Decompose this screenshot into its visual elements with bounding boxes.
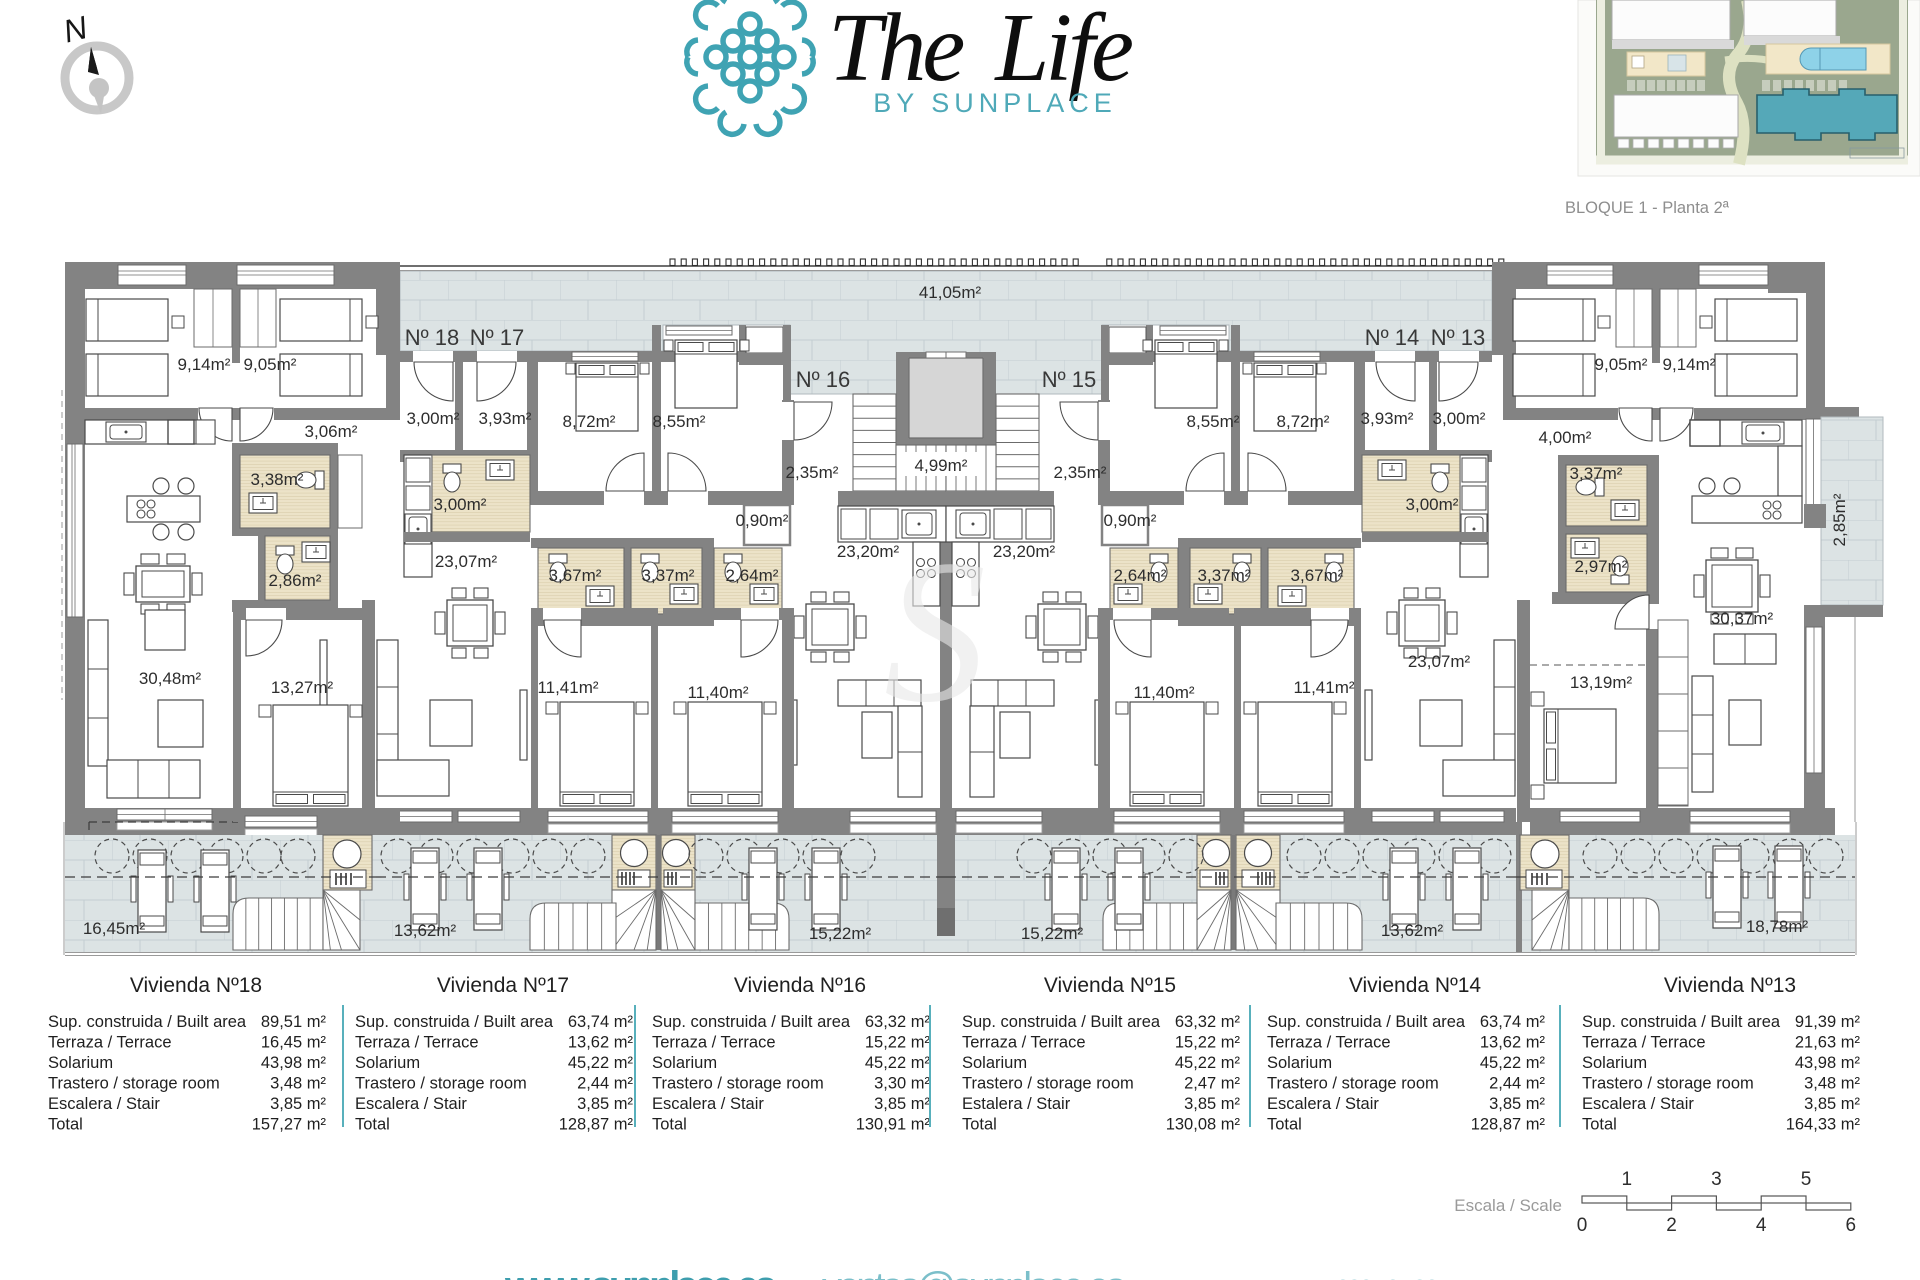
svg-text:3,37m²: 3,37m² bbox=[1198, 566, 1251, 585]
svg-text:2,44 m²: 2,44 m² bbox=[577, 1075, 633, 1093]
svg-text:ventas@sunplace.es: ventas@sunplace.es bbox=[822, 1265, 1126, 1280]
svg-text:18,78m²: 18,78m² bbox=[1746, 917, 1809, 936]
svg-text:Trastero / storage room: Trastero / storage room bbox=[1267, 1075, 1439, 1093]
svg-text:Solarium: Solarium bbox=[355, 1054, 420, 1072]
svg-text:Nº 16: Nº 16 bbox=[796, 367, 851, 392]
svg-text:Escalera / Stair: Escalera / Stair bbox=[1582, 1095, 1694, 1113]
svg-text:3,85 m²: 3,85 m² bbox=[577, 1095, 633, 1113]
svg-text:3,48 m²: 3,48 m² bbox=[270, 1075, 326, 1093]
svg-text:Total: Total bbox=[1582, 1116, 1617, 1134]
svg-text:Total: Total bbox=[48, 1116, 83, 1134]
svg-text:13,27m²: 13,27m² bbox=[271, 678, 334, 697]
svg-text:3,67m²: 3,67m² bbox=[549, 566, 602, 585]
svg-text:13,62m²: 13,62m² bbox=[1381, 921, 1444, 940]
svg-text:45,22 m²: 45,22 m² bbox=[1175, 1054, 1241, 1072]
svg-text:91,39 m²: 91,39 m² bbox=[1795, 1013, 1861, 1031]
svg-text:23,07m²: 23,07m² bbox=[435, 552, 498, 571]
svg-text:Total: Total bbox=[962, 1116, 997, 1134]
svg-text:Vivienda Nº13: Vivienda Nº13 bbox=[1664, 974, 1796, 997]
svg-text:4,00m²: 4,00m² bbox=[1539, 428, 1592, 447]
svg-text:3,37m²: 3,37m² bbox=[1570, 464, 1623, 483]
svg-text:4,99m²: 4,99m² bbox=[915, 456, 968, 475]
svg-text:3,00m²: 3,00m² bbox=[434, 495, 487, 514]
svg-text:Vivienda Nº16: Vivienda Nº16 bbox=[734, 974, 866, 997]
svg-text:Trastero / storage room: Trastero / storage room bbox=[355, 1075, 527, 1093]
svg-text:5: 5 bbox=[1801, 1169, 1812, 1190]
svg-text:41,05m²: 41,05m² bbox=[919, 283, 982, 302]
svg-text:6: 6 bbox=[1846, 1215, 1857, 1236]
svg-text:2,64m²: 2,64m² bbox=[726, 566, 779, 585]
svg-text:16,45 m²: 16,45 m² bbox=[261, 1034, 327, 1052]
svg-text:45,22 m²: 45,22 m² bbox=[865, 1054, 931, 1072]
svg-text:3,85 m²: 3,85 m² bbox=[1184, 1095, 1240, 1113]
svg-text:Vivienda Nº15: Vivienda Nº15 bbox=[1044, 974, 1176, 997]
svg-text:0,90m²: 0,90m² bbox=[1104, 511, 1157, 530]
svg-text:Escalera / Stair: Escalera / Stair bbox=[48, 1095, 160, 1113]
svg-text:16,45m²: 16,45m² bbox=[83, 919, 146, 938]
svg-text:Escalera / Stair: Escalera / Stair bbox=[652, 1095, 764, 1113]
svg-text:0: 0 bbox=[1577, 1215, 1588, 1236]
svg-text:15,22m²: 15,22m² bbox=[1021, 924, 1084, 943]
svg-text:Escala / Scale: Escala / Scale bbox=[1454, 1196, 1562, 1215]
svg-text:8,55m²: 8,55m² bbox=[1187, 412, 1240, 431]
svg-text:63,32 m²: 63,32 m² bbox=[1175, 1013, 1241, 1031]
svg-text:Sup. construida / Built area: Sup. construida / Built area bbox=[355, 1013, 554, 1031]
svg-text:164,33 m²: 164,33 m² bbox=[1786, 1116, 1861, 1134]
svg-text:682 435 861: 682 435 861 bbox=[1334, 1273, 1452, 1280]
svg-text:Total: Total bbox=[652, 1116, 687, 1134]
svg-text:Vivienda Nº18: Vivienda Nº18 bbox=[130, 974, 262, 997]
svg-text:Solarium: Solarium bbox=[1582, 1054, 1647, 1072]
svg-text:3,00m²: 3,00m² bbox=[1406, 495, 1459, 514]
svg-text:www.sunplace.es: www.sunplace.es bbox=[504, 1264, 777, 1280]
svg-text:2: 2 bbox=[1666, 1215, 1677, 1236]
svg-text:Sup. construida / Built area: Sup. construida / Built area bbox=[1582, 1013, 1781, 1031]
svg-text:Nº 17: Nº 17 bbox=[470, 325, 525, 350]
svg-text:89,51 m²: 89,51 m² bbox=[261, 1013, 327, 1031]
svg-text:3,93m²: 3,93m² bbox=[479, 409, 532, 428]
svg-text:Trastero / storage room: Trastero / storage room bbox=[652, 1075, 824, 1093]
svg-text:3,48 m²: 3,48 m² bbox=[1804, 1075, 1860, 1093]
svg-text:Sup. construida / Built area: Sup. construida / Built area bbox=[1267, 1013, 1466, 1031]
svg-text:Sup. construida / Built area: Sup. construida / Built area bbox=[962, 1013, 1161, 1031]
svg-text:8,55m²: 8,55m² bbox=[653, 412, 706, 431]
svg-text:Terraza / Terrace: Terraza / Terrace bbox=[1582, 1034, 1706, 1052]
svg-text:0,90m²: 0,90m² bbox=[736, 511, 789, 530]
svg-text:Terraza / Terrace: Terraza / Terrace bbox=[1267, 1034, 1391, 1052]
svg-text:Vivienda Nº14: Vivienda Nº14 bbox=[1349, 974, 1482, 997]
svg-text:Nº 15: Nº 15 bbox=[1042, 367, 1097, 392]
svg-text:11,41m²: 11,41m² bbox=[537, 678, 598, 697]
svg-text:3,67m²: 3,67m² bbox=[1291, 566, 1344, 585]
svg-text:3,85 m²: 3,85 m² bbox=[270, 1095, 326, 1113]
svg-text:1: 1 bbox=[1622, 1169, 1633, 1190]
svg-text:9,05m²: 9,05m² bbox=[244, 355, 297, 374]
svg-text:11,40m²: 11,40m² bbox=[1133, 683, 1194, 702]
svg-text:Nº 18: Nº 18 bbox=[405, 325, 460, 350]
svg-text:Solarium: Solarium bbox=[1267, 1054, 1332, 1072]
svg-text:23,20m²: 23,20m² bbox=[993, 542, 1056, 561]
svg-text:43,98 m²: 43,98 m² bbox=[1795, 1054, 1861, 1072]
svg-text:3,38m²: 3,38m² bbox=[251, 470, 304, 489]
svg-text:13,62 m²: 13,62 m² bbox=[568, 1034, 634, 1052]
svg-text:45,22 m²: 45,22 m² bbox=[1480, 1054, 1546, 1072]
svg-text:3,00m²: 3,00m² bbox=[407, 409, 460, 428]
svg-text:Trastero / storage room: Trastero / storage room bbox=[962, 1075, 1134, 1093]
svg-text:Total: Total bbox=[355, 1116, 390, 1134]
svg-text:3,00m²: 3,00m² bbox=[1433, 409, 1486, 428]
svg-text:13,62 m²: 13,62 m² bbox=[1480, 1034, 1546, 1052]
svg-text:Estalera / Stair: Estalera / Stair bbox=[962, 1095, 1071, 1113]
svg-text:Trastero / storage room: Trastero / storage room bbox=[1582, 1075, 1754, 1093]
svg-text:21,63 m²: 21,63 m² bbox=[1795, 1034, 1861, 1052]
svg-text:23,20m²: 23,20m² bbox=[837, 542, 900, 561]
svg-text:Terraza / Terrace: Terraza / Terrace bbox=[652, 1034, 776, 1052]
svg-text:15,22 m²: 15,22 m² bbox=[865, 1034, 931, 1052]
svg-text:8,72m²: 8,72m² bbox=[563, 412, 616, 431]
svg-text:Solarium: Solarium bbox=[48, 1054, 113, 1072]
svg-text:11,40m²: 11,40m² bbox=[687, 683, 748, 702]
svg-text:8,72m²: 8,72m² bbox=[1277, 412, 1330, 431]
svg-text:2,86m²: 2,86m² bbox=[269, 571, 322, 590]
svg-text:3,93m²: 3,93m² bbox=[1361, 409, 1414, 428]
svg-text:157,27 m²: 157,27 m² bbox=[252, 1116, 327, 1134]
svg-text:BY SUNPLACE: BY SUNPLACE bbox=[873, 88, 1117, 118]
svg-text:13,19m²: 13,19m² bbox=[1570, 673, 1633, 692]
svg-text:30,48m²: 30,48m² bbox=[139, 669, 202, 688]
svg-text:Nº 14: Nº 14 bbox=[1365, 325, 1420, 350]
svg-text:Trastero / storage room: Trastero / storage room bbox=[48, 1075, 220, 1093]
svg-text:23,07m²: 23,07m² bbox=[1408, 652, 1471, 671]
svg-text:4: 4 bbox=[1756, 1215, 1767, 1236]
svg-text:63,74 m²: 63,74 m² bbox=[1480, 1013, 1546, 1031]
svg-text:3,06m²: 3,06m² bbox=[305, 422, 358, 441]
svg-text:128,87 m²: 128,87 m² bbox=[559, 1116, 634, 1134]
svg-text:phone: [00 34]: phone: [00 34] bbox=[1180, 1276, 1320, 1280]
svg-text:Escalera / Stair: Escalera / Stair bbox=[355, 1095, 467, 1113]
svg-text:3,30 m²: 3,30 m² bbox=[874, 1075, 930, 1093]
svg-text:3: 3 bbox=[1711, 1169, 1722, 1190]
svg-text:2,35m²: 2,35m² bbox=[786, 463, 839, 482]
svg-text:11,41m²: 11,41m² bbox=[1293, 678, 1354, 697]
svg-text:2,47 m²: 2,47 m² bbox=[1184, 1075, 1240, 1093]
svg-text:43,98 m²: 43,98 m² bbox=[261, 1054, 327, 1072]
svg-text:9,05m²: 9,05m² bbox=[1595, 355, 1648, 374]
svg-text:Solarium: Solarium bbox=[652, 1054, 717, 1072]
svg-text:15,22 m²: 15,22 m² bbox=[1175, 1034, 1241, 1052]
svg-text:Sup. construida / Built area: Sup. construida / Built area bbox=[652, 1013, 851, 1031]
svg-text:The Life: The Life bbox=[828, 0, 1134, 101]
svg-text:2,64m²: 2,64m² bbox=[1114, 566, 1167, 585]
svg-text:Nº 13: Nº 13 bbox=[1431, 325, 1486, 350]
svg-text:3,85 m²: 3,85 m² bbox=[1804, 1095, 1860, 1113]
svg-text:130,08 m²: 130,08 m² bbox=[1166, 1116, 1241, 1134]
svg-text:9,14m²: 9,14m² bbox=[178, 355, 231, 374]
svg-text:Solarium: Solarium bbox=[962, 1054, 1027, 1072]
svg-text:Terraza / Terrace: Terraza / Terrace bbox=[355, 1034, 479, 1052]
svg-text:Escalera / Stair: Escalera / Stair bbox=[1267, 1095, 1379, 1113]
svg-text:Terraza / Terrace: Terraza / Terrace bbox=[962, 1034, 1086, 1052]
svg-text:-: - bbox=[1148, 1275, 1157, 1280]
svg-text:45,22 m²: 45,22 m² bbox=[568, 1054, 634, 1072]
svg-text:13,62m²: 13,62m² bbox=[394, 921, 457, 940]
svg-text:2,85m²: 2,85m² bbox=[1830, 493, 1849, 546]
svg-text:Sup. construida / Built area: Sup. construida / Built area bbox=[48, 1013, 247, 1031]
svg-text:2,35m²: 2,35m² bbox=[1054, 463, 1107, 482]
svg-text:9,14m²: 9,14m² bbox=[1663, 355, 1716, 374]
svg-text:128,87 m²: 128,87 m² bbox=[1471, 1116, 1546, 1134]
svg-text:BLOQUE 1 - Planta 2ª: BLOQUE 1 - Planta 2ª bbox=[1565, 199, 1730, 217]
svg-text:130,91 m²: 130,91 m² bbox=[856, 1116, 931, 1134]
svg-text:63,32 m²: 63,32 m² bbox=[865, 1013, 931, 1031]
svg-text:3,85 m²: 3,85 m² bbox=[874, 1095, 930, 1113]
svg-text:2,44 m²: 2,44 m² bbox=[1489, 1075, 1545, 1093]
svg-text:15,22m²: 15,22m² bbox=[809, 924, 872, 943]
svg-text:63,74 m²: 63,74 m² bbox=[568, 1013, 634, 1031]
svg-text:Total: Total bbox=[1267, 1116, 1302, 1134]
svg-text:Terraza / Terrace: Terraza / Terrace bbox=[48, 1034, 172, 1052]
svg-text:-: - bbox=[789, 1266, 801, 1280]
svg-text:3,37m²: 3,37m² bbox=[642, 566, 695, 585]
svg-text:30,37m²: 30,37m² bbox=[1711, 609, 1774, 628]
svg-text:3,85 m²: 3,85 m² bbox=[1489, 1095, 1545, 1113]
svg-text:2,97m²: 2,97m² bbox=[1575, 557, 1628, 576]
svg-text:Vivienda Nº17: Vivienda Nº17 bbox=[437, 974, 569, 997]
